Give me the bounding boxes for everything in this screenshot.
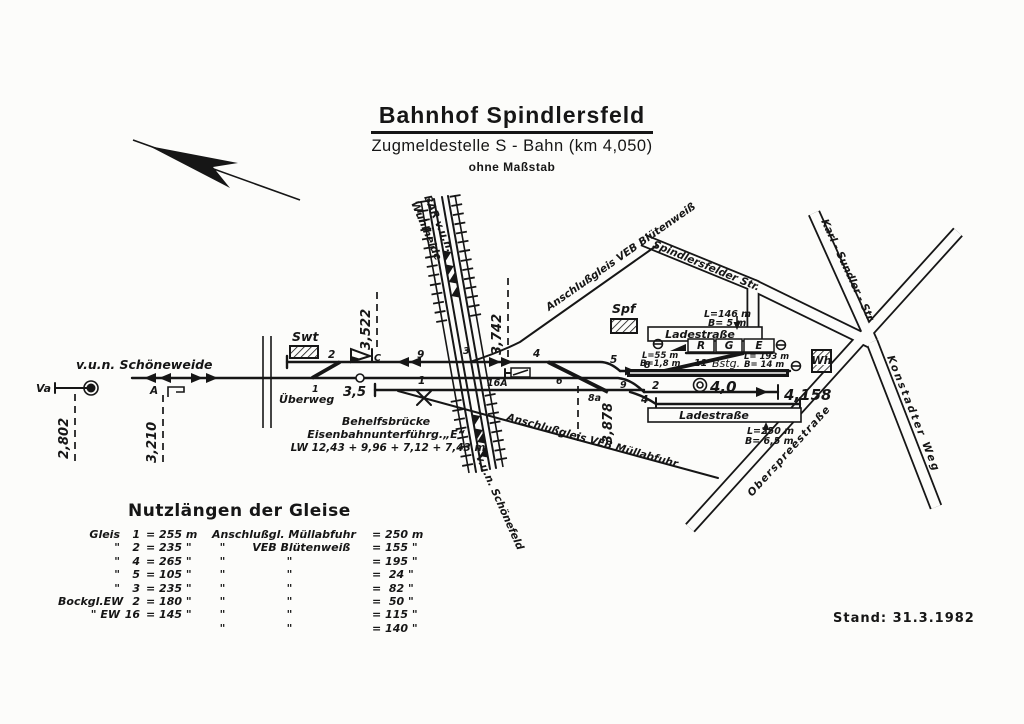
track-closed-mark (417, 391, 431, 405)
km-4158-label: 4,158 (783, 386, 831, 404)
swt-label: Swt (292, 329, 320, 344)
legend-row: Gleis1= 255 mAnschlußgl. Müllabfuhr= 250… (58, 528, 436, 541)
ramp-g-label: G (725, 340, 734, 352)
track-plan-sheet: Spindlersfelder Str. Karl - Sundler - St… (0, 0, 1024, 724)
switch-3-label: 3 (463, 346, 470, 357)
legend-row: "2= 235 " " VEB Blütenweiß= 155 " (58, 541, 436, 554)
track-1-label: 1 (418, 375, 425, 387)
switch-6-label: 6 (556, 376, 563, 387)
legend-row: "3= 235 " " "= 82 " (58, 582, 436, 595)
dim-b65-label: B= 6,5 m (745, 436, 794, 447)
switch-9-label: 9 (620, 380, 627, 391)
track-circle-symbol (356, 374, 364, 382)
switch-1-label: 1 (312, 384, 319, 395)
street-spindlersfelder-label: Spindlersfelder Str. (651, 239, 762, 294)
km-40-label: 4,0 (709, 378, 737, 396)
track-4-right-label: 4 (640, 394, 648, 406)
signal-va (55, 381, 98, 395)
km-3210-label: 3,210 (145, 422, 160, 463)
track-16a-label: 16A (487, 378, 508, 389)
km-40-symbol (694, 379, 707, 392)
legend-row: " EW16= 145 " " "= 115 " (58, 608, 436, 621)
track-9-label: 9 (417, 349, 424, 361)
spf-building (611, 319, 637, 333)
revision-date: Stand: 31.3.1982 (833, 611, 975, 626)
km-35-label: 3,5 (343, 385, 366, 400)
legend-row: "5= 105 " " "= 24 " (58, 568, 436, 581)
wh-label: Wh (812, 354, 832, 367)
title-block: Bahnhof Spindlersfeld Zugmeldestelle S -… (0, 102, 1024, 174)
signal-a-label: A (149, 385, 158, 397)
direction-schoeneweide-label: v.u.n. Schöneweide (76, 357, 213, 372)
track-2-right-label: 2 (652, 380, 659, 392)
direction-schoenefeld-label: v.u.n. Schönefeld (473, 453, 526, 552)
station-title: Bahnhof Spindlersfeld (371, 102, 653, 134)
ueberweg-label: Überweg (279, 392, 334, 406)
signal-a (168, 387, 184, 397)
track-2-label: 2 (328, 349, 335, 361)
dim-b5-label: B= 5 m (708, 318, 746, 329)
swt-building (290, 346, 318, 358)
switch-8a-label: 8a (588, 393, 601, 404)
bridge-note-line2: Eisenbahnunterführg.„E“ (307, 428, 465, 441)
bstg-label: Bstg. (712, 357, 740, 370)
spf-label: Spf (612, 301, 637, 316)
platform (627, 369, 789, 377)
legend-title: Nutzlängen der Gleise (128, 501, 436, 521)
km-3522-label: 3,522 (359, 309, 374, 350)
box-signal (505, 368, 530, 377)
signal-c-label: C (374, 353, 381, 364)
ramp-e-label: E (755, 340, 763, 352)
switch-11-label: 11 (694, 358, 707, 369)
track-5-label: 5 (610, 354, 617, 366)
scale-note: ohne Maßstab (0, 160, 1024, 174)
legend-row: " "= 140 " (58, 622, 436, 635)
legend: Nutzlängen der Gleise Gleis1= 255 mAnsch… (58, 501, 436, 635)
dim-b14-label: B= 14 m (744, 360, 784, 370)
street-karl-sundler-label: Karl - Sundler - Str. (818, 217, 877, 325)
ueberweg-crossing (263, 336, 271, 428)
station-subtitle: Zugmeldestelle S - Bahn (km 4,050) (0, 137, 1024, 156)
legend-row: "4= 265 " " "= 195 " (58, 555, 436, 568)
ladestrasse-bottom-label: Ladestraße (679, 409, 749, 422)
track-8-label: 8 (644, 360, 651, 371)
signal-va-label: Va (36, 382, 51, 395)
bridge-note-line3: LW 12,43 + 9,96 + 7,12 + 7,43 m (291, 442, 486, 454)
ramp-r-label: R (697, 340, 705, 352)
bridge-note-line1: Behelfsbrücke (342, 415, 431, 428)
km-2802-label: 2,802 (57, 418, 72, 459)
legend-row: Bockgl.EW2= 180 " " "= 50 " (58, 595, 436, 608)
track-4-label: 4 (532, 348, 540, 360)
